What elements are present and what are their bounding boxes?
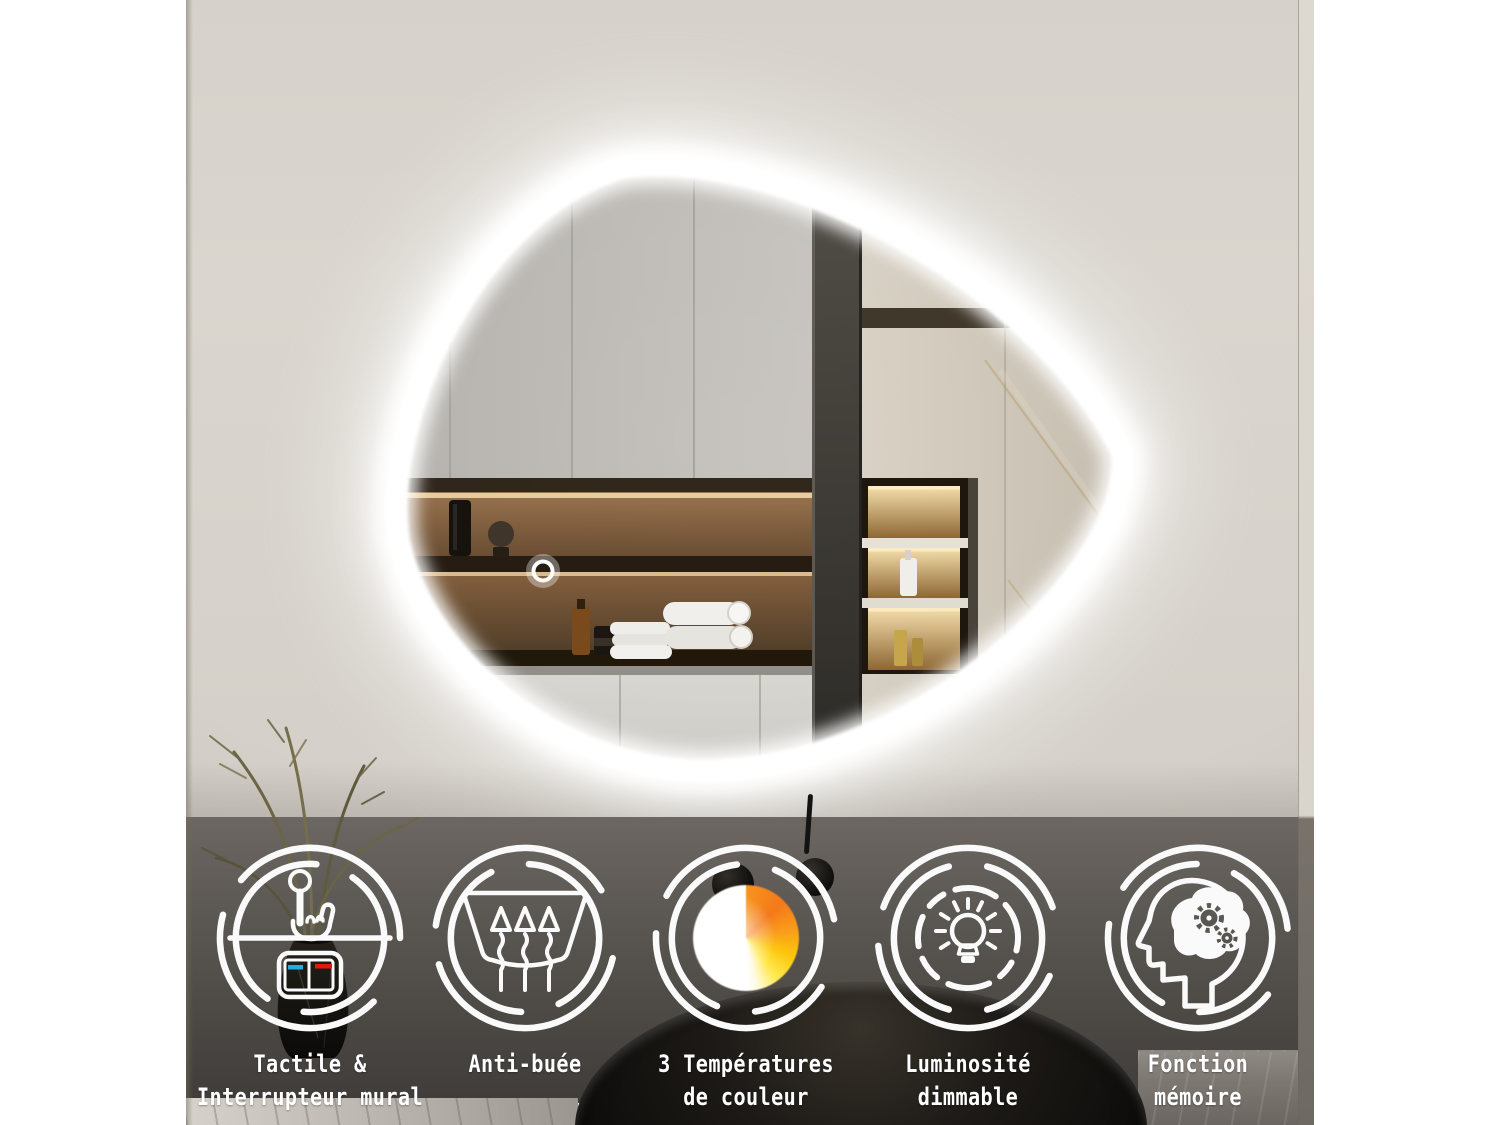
photo-left-edge: [186, 0, 193, 1125]
bathroom-photo: Tactile & Interrupteur mural Anti-buée 3…: [186, 0, 1314, 1125]
switch-red-indicator: [315, 964, 332, 969]
wall-switch-glyph: [279, 953, 341, 997]
icon-rings: [419, 832, 627, 1045]
color-temperature-icon: [646, 838, 846, 1038]
anti-fog-icon: [425, 838, 625, 1038]
label-line: dimmable: [850, 1081, 1085, 1114]
memory-function-icon: [1098, 838, 1298, 1038]
label-line: Fonction: [1080, 1048, 1314, 1081]
dimmer-dial: [904, 874, 1032, 1002]
product-image-page: Tactile & Interrupteur mural Anti-buée 3…: [0, 0, 1500, 1125]
icon-rings: [645, 836, 843, 1039]
bulb-glyph: [936, 899, 1000, 963]
feature-label-memory: Fonction mémoire: [1058, 1048, 1314, 1114]
touch-and-wall-switch-icon: [210, 838, 410, 1038]
label-line: Interrupteur mural: [192, 1081, 427, 1114]
brain-with-gears-glyph: [1171, 887, 1250, 959]
marble-wall-strip: [1298, 0, 1314, 1125]
tap-hand-glyph: [290, 871, 333, 939]
label-line: Luminosité: [850, 1048, 1085, 1081]
led-mirror: [360, 110, 1160, 810]
dimmable-brightness-icon: [868, 838, 1068, 1038]
defog-glyph: [465, 893, 585, 990]
bulb-rays: [936, 899, 1000, 948]
icon-rings: [878, 848, 1052, 1028]
switch-blue-indicator: [288, 965, 303, 970]
label-line: mémoire: [1080, 1081, 1314, 1114]
